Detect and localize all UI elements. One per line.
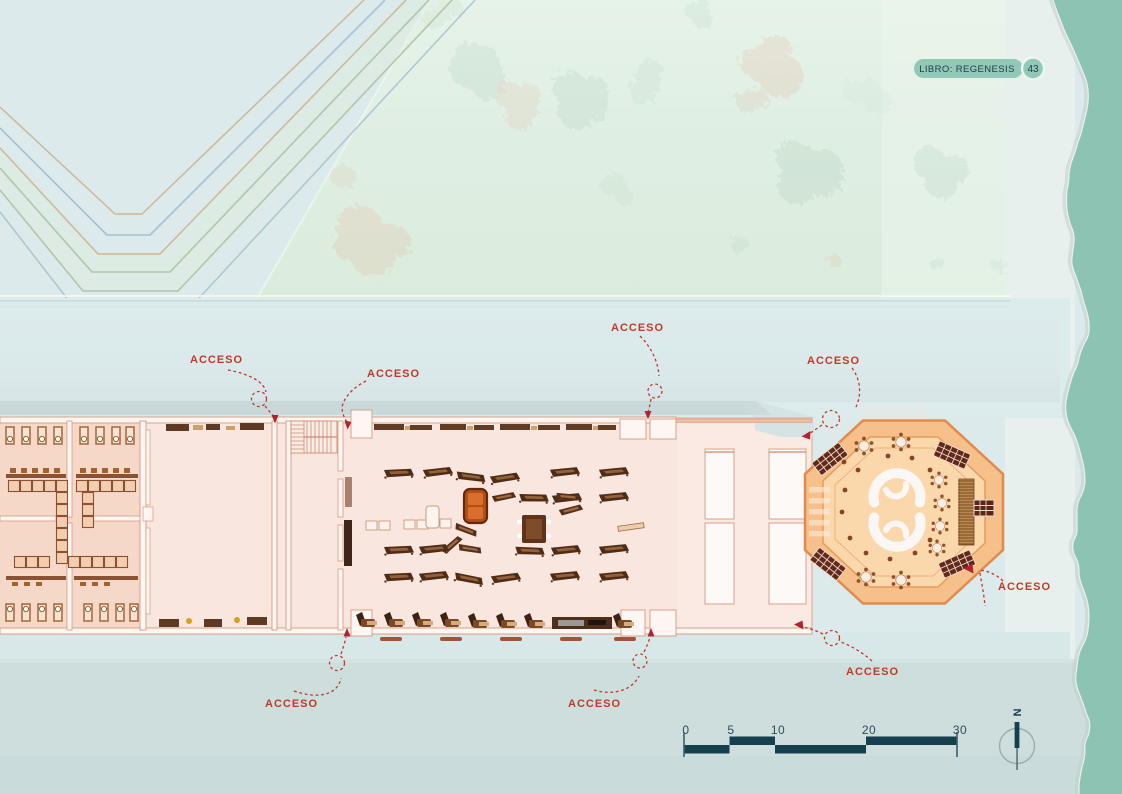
- svg-text:5: 5: [727, 723, 734, 737]
- svg-text:10: 10: [771, 723, 785, 737]
- svg-text:ACCESO: ACCESO: [846, 666, 899, 678]
- svg-text:0: 0: [682, 723, 689, 737]
- svg-text:30: 30: [953, 723, 967, 737]
- svg-text:ACCESO: ACCESO: [568, 698, 621, 710]
- svg-text:ACCESO: ACCESO: [998, 581, 1051, 593]
- svg-text:ACCESO: ACCESO: [265, 698, 318, 710]
- svg-text:N: N: [1011, 709, 1023, 717]
- svg-text:ACCESO: ACCESO: [190, 354, 243, 366]
- svg-text:LIBRO: REGENESIS: LIBRO: REGENESIS: [919, 64, 1015, 75]
- svg-text:ACCESO: ACCESO: [807, 355, 860, 367]
- svg-text:ACCESO: ACCESO: [367, 368, 420, 380]
- svg-text:43: 43: [1027, 64, 1039, 75]
- svg-text:ACCESO: ACCESO: [611, 322, 664, 334]
- svg-text:20: 20: [862, 723, 876, 737]
